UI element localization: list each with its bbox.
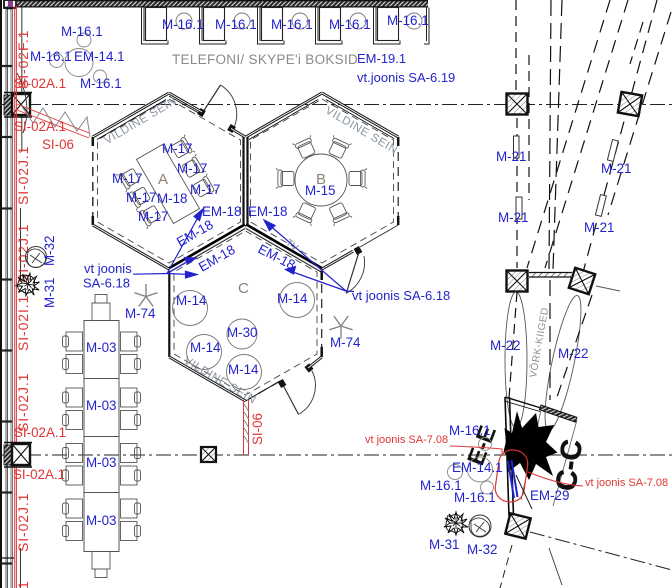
svg-text:M-17: M-17: [190, 182, 221, 197]
svg-text:M-16.1: M-16.1: [30, 49, 72, 64]
svg-text:M-03: M-03: [86, 455, 117, 470]
svg-text:TELEFONI/ SKYPE'i BOKSID: TELEFONI/ SKYPE'i BOKSID: [172, 52, 358, 67]
svg-text:M-17: M-17: [177, 161, 208, 176]
svg-text:M-32: M-32: [42, 235, 57, 266]
svg-text:M-16.1: M-16.1: [454, 490, 496, 505]
svg-text:M-74: M-74: [330, 335, 361, 350]
svg-text:M-31: M-31: [429, 537, 460, 552]
svg-text:M-03: M-03: [86, 513, 117, 528]
svg-text:M-21: M-21: [498, 210, 529, 225]
svg-text:M-16.1: M-16.1: [449, 423, 491, 438]
svg-text:M-17: M-17: [162, 141, 193, 156]
svg-text:M-03: M-03: [86, 398, 117, 413]
svg-text:M-21: M-21: [584, 220, 615, 235]
svg-text:M-16.1: M-16.1: [387, 13, 429, 28]
svg-text:M-21: M-21: [601, 161, 632, 176]
svg-text:M-16.1: M-16.1: [329, 17, 371, 32]
svg-text:M-17: M-17: [126, 190, 157, 205]
svg-text:SI-02F.1: SI-02F.1: [15, 30, 31, 89]
svg-text:M-14: M-14: [228, 362, 259, 377]
svg-text:SI-02J.1: SI-02J.1: [15, 146, 31, 205]
svg-text:M-74: M-74: [125, 306, 156, 321]
svg-text:M-16.1: M-16.1: [80, 76, 122, 91]
svg-text:SI-02A.1: SI-02A.1: [13, 467, 65, 482]
svg-text:M-17: M-17: [138, 209, 169, 224]
svg-text:SI-02I.1: SI-02I.1: [15, 295, 31, 351]
svg-text:A: A: [158, 171, 168, 188]
svg-text:vt joonis SA-7.08: vt joonis SA-7.08: [365, 434, 448, 446]
svg-text:M-16.1: M-16.1: [162, 17, 204, 32]
svg-text:vt joonis SA-7.08: vt joonis SA-7.08: [585, 477, 668, 489]
svg-text:EM-18: EM-18: [248, 204, 287, 219]
svg-text:1: 1: [15, 580, 31, 588]
svg-text:M-31: M-31: [42, 277, 57, 308]
svg-text:SI-06: SI-06: [250, 413, 265, 445]
svg-text:M-17: M-17: [112, 171, 143, 186]
svg-text:SA-6.18: SA-6.18: [83, 276, 130, 291]
svg-text:M-30: M-30: [227, 325, 258, 340]
svg-text:M-16.1: M-16.1: [271, 17, 313, 32]
svg-text:M-15: M-15: [305, 183, 336, 198]
svg-text:EM-29: EM-29: [530, 488, 569, 503]
svg-text:M-22: M-22: [490, 338, 521, 353]
svg-text:SI-02J.1: SI-02J.1: [15, 493, 31, 552]
svg-text:SI-02A.1: SI-02A.1: [14, 119, 66, 134]
svg-text:M-32: M-32: [467, 542, 498, 557]
svg-text:M-16.1: M-16.1: [61, 24, 103, 39]
svg-text:vt.joonis SA-6.19: vt.joonis SA-6.19: [357, 70, 455, 85]
svg-text:M-18: M-18: [157, 191, 188, 206]
svg-text:M-14: M-14: [277, 291, 308, 306]
svg-text:EM-14.1: EM-14.1: [74, 49, 125, 64]
svg-text:M-14: M-14: [190, 340, 221, 355]
svg-text:EM-19.1: EM-19.1: [357, 51, 406, 66]
svg-text:M-16.1: M-16.1: [215, 17, 257, 32]
svg-text:M-03: M-03: [86, 340, 117, 355]
svg-text:M-14: M-14: [176, 293, 207, 308]
svg-text:M-22: M-22: [558, 346, 589, 361]
svg-text:SI-06: SI-06: [42, 137, 74, 152]
svg-text:vt joonis SA-6.18: vt joonis SA-6.18: [352, 288, 450, 303]
svg-text:vt joonis: vt joonis: [84, 261, 132, 276]
svg-text:C: C: [238, 280, 249, 297]
svg-text:M-21: M-21: [496, 149, 527, 164]
svg-text:SI-02J.1: SI-02J.1: [15, 373, 31, 432]
svg-text:EM-14.1: EM-14.1: [452, 460, 503, 475]
